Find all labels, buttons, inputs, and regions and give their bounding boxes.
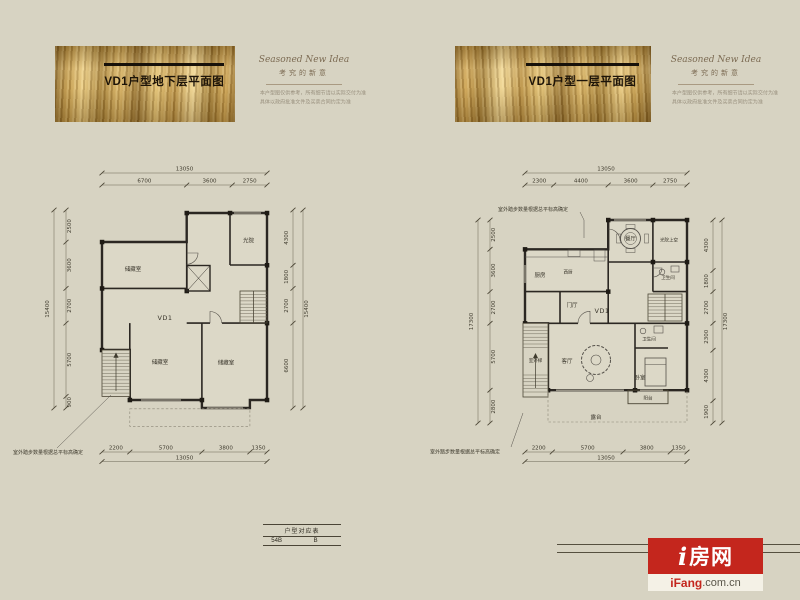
- dim-bottom-seg: 3800: [219, 446, 233, 452]
- tagline-script: Seasoned New Idea: [668, 55, 764, 65]
- room-bath-low: 卫生间: [642, 336, 656, 343]
- room-terrace: 露台: [590, 413, 602, 421]
- dim-bottom-seg: 5700: [159, 446, 173, 452]
- disclaimer-line2: 具体以政府批准文件及买卖合同约定为准: [672, 99, 760, 107]
- first-floorplan: 13050 2300 4400 3600 2750 2200 5700 3800…: [400, 150, 800, 480]
- room-living: 客厅: [561, 357, 573, 365]
- dim-left-total: 15400: [45, 300, 51, 318]
- dim-left-seg: 3600: [491, 263, 497, 277]
- basement-floorplan: 13050 6700 3600 2750 2200 5700 3800 1350…: [0, 150, 400, 480]
- dim-bottom-seg: 2200: [532, 446, 546, 452]
- outdoor-steps-note-bottom: 室外踏步数量根据总平标高确定: [430, 449, 500, 456]
- dim-bottom-seg: 5700: [581, 446, 595, 452]
- dim-left-seg: 5700: [67, 352, 73, 366]
- tagline-cn: 考究的新意: [668, 68, 764, 78]
- outdoor-steps-note-top: 室外踏步数量根据总平标高确定: [498, 206, 568, 213]
- disclaimer-line2: 具体以政府批准文件及买卖合同约定为准: [260, 99, 348, 107]
- unit-label: VD1: [157, 314, 172, 322]
- dim-top-seg: 2750: [663, 179, 677, 185]
- dim-left-seg: 2500: [67, 219, 73, 233]
- dim-left-seg: 2700: [491, 300, 497, 314]
- tagline-rule: [678, 84, 754, 85]
- room-storage-top: 储藏室: [125, 265, 142, 273]
- room-dining: 餐厅: [625, 235, 637, 243]
- tagline-rule: [266, 84, 342, 85]
- dim-right-seg: 1900: [704, 404, 710, 418]
- dim-right-seg: 4300: [284, 230, 290, 244]
- dim-top-seg: 2300: [532, 179, 546, 185]
- banner-basement-title: VD1户型地下层平面图: [104, 73, 224, 89]
- dim-right-seg: 2300: [704, 329, 710, 343]
- ifang-logo: i 房网 iFang .com.cn: [648, 538, 763, 591]
- room-balcony: 阳台: [644, 395, 653, 402]
- ifang-suffix: .com.cn: [702, 577, 741, 589]
- outdoor-steps-note: 室外踏步数量根据总平标高确定: [13, 449, 83, 456]
- annotation: 室外踏步数量根据总平标高确定: [13, 395, 111, 456]
- banner-basement: VD1户型地下层平面图: [55, 46, 235, 122]
- dim-right-seg: 4300: [704, 368, 710, 382]
- disclaimer-line1: 本户型图仅供参考，所有细节请以实际交付为准: [672, 90, 760, 98]
- unit-label: VD1: [594, 307, 609, 315]
- dim-bottom-total: 13050: [176, 456, 194, 462]
- unit-table-header: 户型对应表: [263, 525, 341, 537]
- ifang-brand: iFang: [670, 576, 702, 590]
- dim-right-seg: 1800: [284, 269, 290, 283]
- room-light-court: 光院上空: [660, 237, 678, 244]
- dim-right-seg: 1800: [704, 274, 710, 288]
- banner-first-floor-title-block: VD1户型一层平面图: [526, 63, 640, 89]
- ifang-logo-i: i: [678, 542, 688, 571]
- room-light-court: 光院: [243, 237, 255, 245]
- dim-left-seg: 2500: [491, 227, 497, 241]
- tagline-left: Seasoned New Idea 考究的新意 本户型图仅供参考，所有细节请以实…: [256, 55, 352, 107]
- room-foyer: 门厅: [566, 301, 578, 309]
- dim-right-total: 17300: [723, 312, 729, 330]
- annotation-bottom: 室外踏步数量根据总平标高确定: [430, 413, 523, 456]
- unit-table-row: 54B B: [263, 537, 341, 545]
- dim-top-seg: 2750: [243, 179, 257, 185]
- room-bedroom: 卧室: [634, 374, 646, 382]
- unit-table-cell: 54B: [263, 538, 290, 544]
- dim-top-seg: 3600: [624, 179, 638, 185]
- banner-title-rule: [104, 63, 224, 66]
- unit-table-cell: B: [290, 538, 341, 544]
- dim-bottom-total: 13050: [597, 456, 615, 462]
- terrace-dashed-outline: [548, 391, 687, 422]
- tagline-cn: 考究的新意: [256, 68, 352, 78]
- dim-right-total: 15400: [304, 300, 310, 318]
- floorplan-sheet: VD1户型地下层平面图 Seasoned New Idea 考究的新意 本户型图…: [0, 0, 800, 600]
- ifang-logo-url: iFang .com.cn: [648, 574, 763, 591]
- room-west-kitchen: 西厨: [564, 270, 573, 276]
- exterior-stair: [102, 350, 130, 396]
- dim-left-seg: 900: [67, 396, 73, 407]
- disclaimer-line1: 本户型图仅供参考，所有细节请以实际交付为准: [260, 90, 348, 98]
- dim-right-seg: 2700: [704, 300, 710, 314]
- dim-bottom-seg: 1350: [252, 446, 266, 452]
- overhang-dashed-outline: [130, 409, 250, 427]
- dim-bottom-seg: 1350: [672, 446, 686, 452]
- annotation-top: 室外踏步数量根据总平标高确定: [498, 206, 584, 238]
- room-bath-mid: 卫生间: [661, 274, 675, 281]
- tagline-script: Seasoned New Idea: [256, 55, 352, 65]
- dim-top-seg: 4400: [574, 179, 588, 185]
- dim-bottom-seg: 3800: [640, 446, 654, 452]
- room-storage-bottom-right: 储藏室: [218, 359, 235, 367]
- dim-left-seg: 5700: [491, 349, 497, 363]
- dim-top-seg: 6700: [137, 179, 151, 185]
- dim-right-seg: 6600: [284, 358, 290, 372]
- dim-bottom-seg: 2200: [109, 446, 123, 452]
- ifang-logo-cn: 房网: [689, 541, 733, 571]
- ifang-logo-mark: i 房网: [648, 538, 763, 574]
- banner-title-rule: [526, 63, 640, 66]
- dim-left-total: 17300: [469, 312, 475, 330]
- banner-first-floor: VD1户型一层平面图: [455, 46, 651, 122]
- banner-basement-title-block: VD1户型地下层平面图: [104, 63, 224, 89]
- dim-top-seg: 3600: [203, 179, 217, 185]
- room-kitchen: 厨房: [534, 271, 546, 279]
- room-storage-bottom-left: 储藏室: [152, 358, 169, 366]
- dim-right-seg: 4300: [704, 238, 710, 252]
- dim-top-total: 13050: [176, 167, 194, 173]
- banner-first-floor-title: VD1户型一层平面图: [526, 73, 640, 89]
- unit-correspondence-table: 户型对应表 54B B: [263, 524, 341, 546]
- dim-top-total: 13050: [597, 167, 615, 173]
- dim-left-seg: 2800: [491, 399, 497, 413]
- dim-right-seg: 2700: [284, 298, 290, 312]
- dim-left-seg: 2700: [67, 298, 73, 312]
- room-outdoor-stair: 室外梯: [529, 357, 543, 364]
- dim-left-seg: 3600: [67, 258, 73, 272]
- tagline-right: Seasoned New Idea 考究的新意 本户型图仅供参考，所有细节请以实…: [668, 55, 764, 107]
